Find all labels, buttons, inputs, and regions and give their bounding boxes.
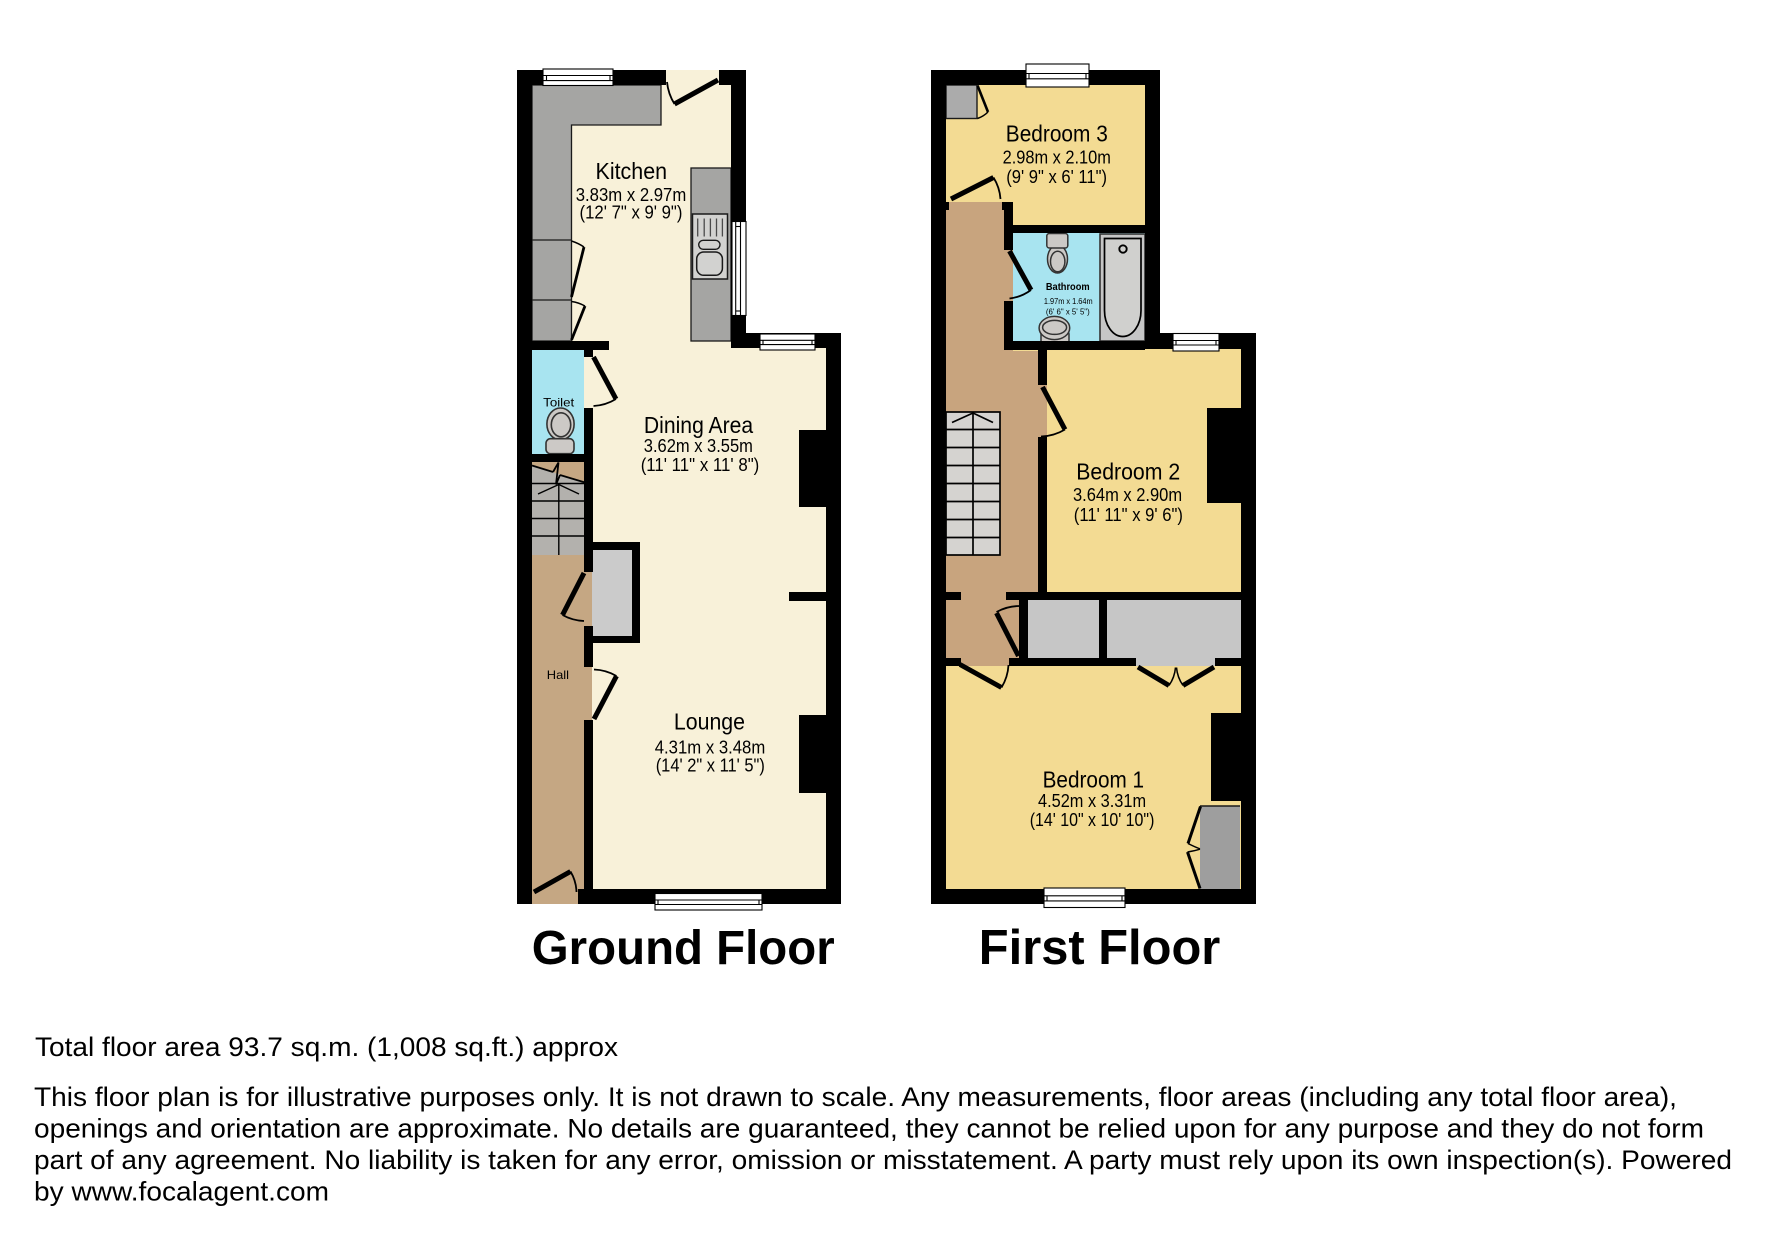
svg-text:Lounge: Lounge bbox=[674, 709, 745, 735]
svg-text:Hall: Hall bbox=[547, 668, 569, 682]
svg-text:3.64m x 2.90m: 3.64m x 2.90m bbox=[1073, 485, 1182, 505]
svg-text:Toilet: Toilet bbox=[543, 396, 575, 410]
svg-text:Bedroom 1: Bedroom 1 bbox=[1043, 766, 1145, 792]
svg-text:Total floor area 93.7 sq.m. (1: Total floor area 93.7 sq.m. (1,008 sq.ft… bbox=[35, 1032, 619, 1062]
svg-text:(14' 2" x 11' 5"): (14' 2" x 11' 5") bbox=[656, 756, 765, 776]
svg-text:3.62m x 3.55m: 3.62m x 3.55m bbox=[644, 436, 753, 456]
svg-text:(9' 9" x 6' 11"): (9' 9" x 6' 11") bbox=[1006, 167, 1107, 187]
svg-text:openings and orientation are a: openings and orientation are approximate… bbox=[34, 1114, 1704, 1144]
svg-text:(14' 10" x 10' 10"): (14' 10" x 10' 10") bbox=[1030, 810, 1155, 830]
svg-text:Dining Area: Dining Area bbox=[644, 412, 753, 438]
svg-text:1.97m x 1.64m: 1.97m x 1.64m bbox=[1044, 297, 1093, 306]
svg-text:4.31m x 3.48m: 4.31m x 3.48m bbox=[655, 737, 766, 757]
svg-text:Kitchen: Kitchen bbox=[596, 158, 668, 184]
svg-text:(11' 11" x 9' 6"): (11' 11" x 9' 6") bbox=[1074, 505, 1183, 525]
svg-text:(12' 7" x 9' 9"): (12' 7" x 9' 9") bbox=[580, 202, 683, 222]
svg-text:Bedroom 2: Bedroom 2 bbox=[1076, 459, 1180, 485]
svg-text:part of any agreement. No liab: part of any agreement. No liability is t… bbox=[34, 1145, 1732, 1175]
svg-text:Bathroom: Bathroom bbox=[1046, 282, 1090, 293]
svg-text:(11' 11" x 11' 8"): (11' 11" x 11' 8") bbox=[641, 455, 760, 475]
svg-text:by www.focalagent.com: by www.focalagent.com bbox=[34, 1176, 329, 1206]
svg-text:4.52m x 3.31m: 4.52m x 3.31m bbox=[1038, 791, 1146, 811]
svg-text:2.98m x 2.10m: 2.98m x 2.10m bbox=[1003, 148, 1111, 168]
svg-text:(6' 6" x 5' 5"): (6' 6" x 5' 5") bbox=[1046, 308, 1090, 317]
svg-text:First Floor: First Floor bbox=[979, 921, 1221, 975]
svg-text:Ground Floor: Ground Floor bbox=[532, 922, 835, 975]
svg-text:Bedroom 3: Bedroom 3 bbox=[1006, 121, 1108, 147]
svg-text:This floor plan is for illustr: This floor plan is for illustrative purp… bbox=[34, 1082, 1677, 1112]
